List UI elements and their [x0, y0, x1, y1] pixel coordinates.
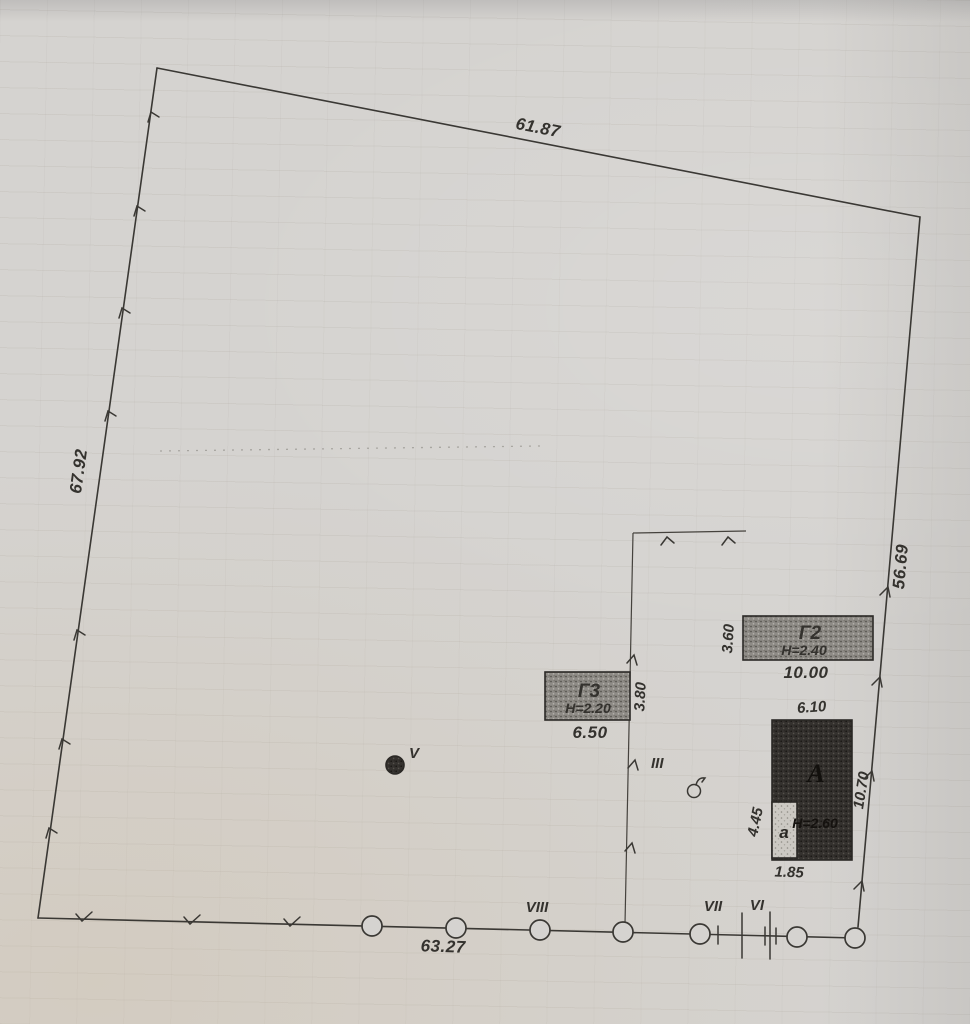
benchmark-flag [696, 778, 705, 785]
dimension-right: 56.69 [889, 543, 912, 590]
internal-boundary [625, 531, 746, 924]
boundary-point-circle [362, 916, 382, 936]
point-v-label: V [409, 745, 421, 762]
building-main-label: А [805, 759, 824, 788]
tick-mark [46, 828, 57, 838]
building-g2: Г2 H=2.40 10.00 3.60 [719, 616, 873, 682]
tick-mark [661, 537, 674, 545]
tick-mark [722, 537, 735, 545]
faint-dashed-boundary [160, 446, 540, 451]
tick-mark [74, 630, 85, 640]
boundary-point-circle [787, 927, 807, 947]
tick-mark [105, 411, 116, 421]
tick-mark [134, 206, 145, 216]
point-iii-label: III [651, 755, 664, 772]
tick-mark [627, 655, 637, 665]
building-g2-label: Г2 [799, 623, 822, 644]
building-g3-length-dim: 6.50 [572, 723, 607, 742]
well-point-v: V [386, 745, 421, 774]
boundary-point-circle [845, 928, 865, 948]
building-g2-height: H=2.40 [781, 642, 827, 658]
internal-vertical-line [625, 533, 633, 924]
scanned-site-plan-paper: Г3 H=2.20 6.50 3.80 Г2 H=2.40 10.00 3.60… [0, 0, 970, 1024]
building-main-height: H=2.60 [792, 815, 838, 831]
boundary-point-circle [446, 918, 466, 938]
boundary-left-line [38, 68, 157, 918]
site-plan-drawing: Г3 H=2.20 6.50 3.80 Г2 H=2.40 10.00 3.60… [0, 0, 970, 1024]
boundary-point-circle [690, 924, 710, 944]
boundary-point-circle [530, 920, 550, 940]
building-g3-height: H=2.20 [565, 700, 611, 716]
benchmark-symbol [688, 778, 706, 798]
building-porch-label: а [779, 823, 788, 842]
tick-mark [59, 739, 70, 749]
inner-vertical-dim: 3.80 [631, 681, 650, 712]
tick-mark [119, 308, 130, 318]
dimension-top: 61.87 [514, 114, 563, 141]
building-porch-side-dim: 4.45 [744, 805, 767, 839]
tick-mark [628, 760, 638, 770]
point-vi-label: VI [750, 897, 765, 914]
building-g3-label: Г3 [578, 681, 601, 702]
benchmark-circle [688, 785, 701, 798]
internal-horizontal-line [633, 531, 746, 533]
building-g2-length-dim: 10.00 [783, 663, 828, 682]
dimension-bottom: 63.27 [420, 936, 467, 957]
building-porch-bottom-dim: 1.85 [774, 863, 804, 881]
building-g2-width-dim: 3.60 [719, 623, 738, 654]
point-viii-label: VIII [526, 899, 549, 916]
boundary-ticks-left [46, 112, 159, 838]
building-main-top-dim: 6.10 [797, 698, 828, 717]
point-vii-label: VII [704, 898, 723, 915]
boundary-point-circle [613, 922, 633, 942]
tick-mark [854, 881, 864, 891]
well-point-circle [386, 756, 404, 774]
building-main: А H=2.60 а 6.10 10.70 4.45 1.85 [744, 698, 873, 882]
dimension-left: 67.92 [66, 448, 91, 495]
tick-mark [872, 677, 882, 687]
building-g3: Г3 H=2.20 6.50 [545, 672, 630, 742]
building-main-side-dim: 10.70 [850, 770, 873, 810]
